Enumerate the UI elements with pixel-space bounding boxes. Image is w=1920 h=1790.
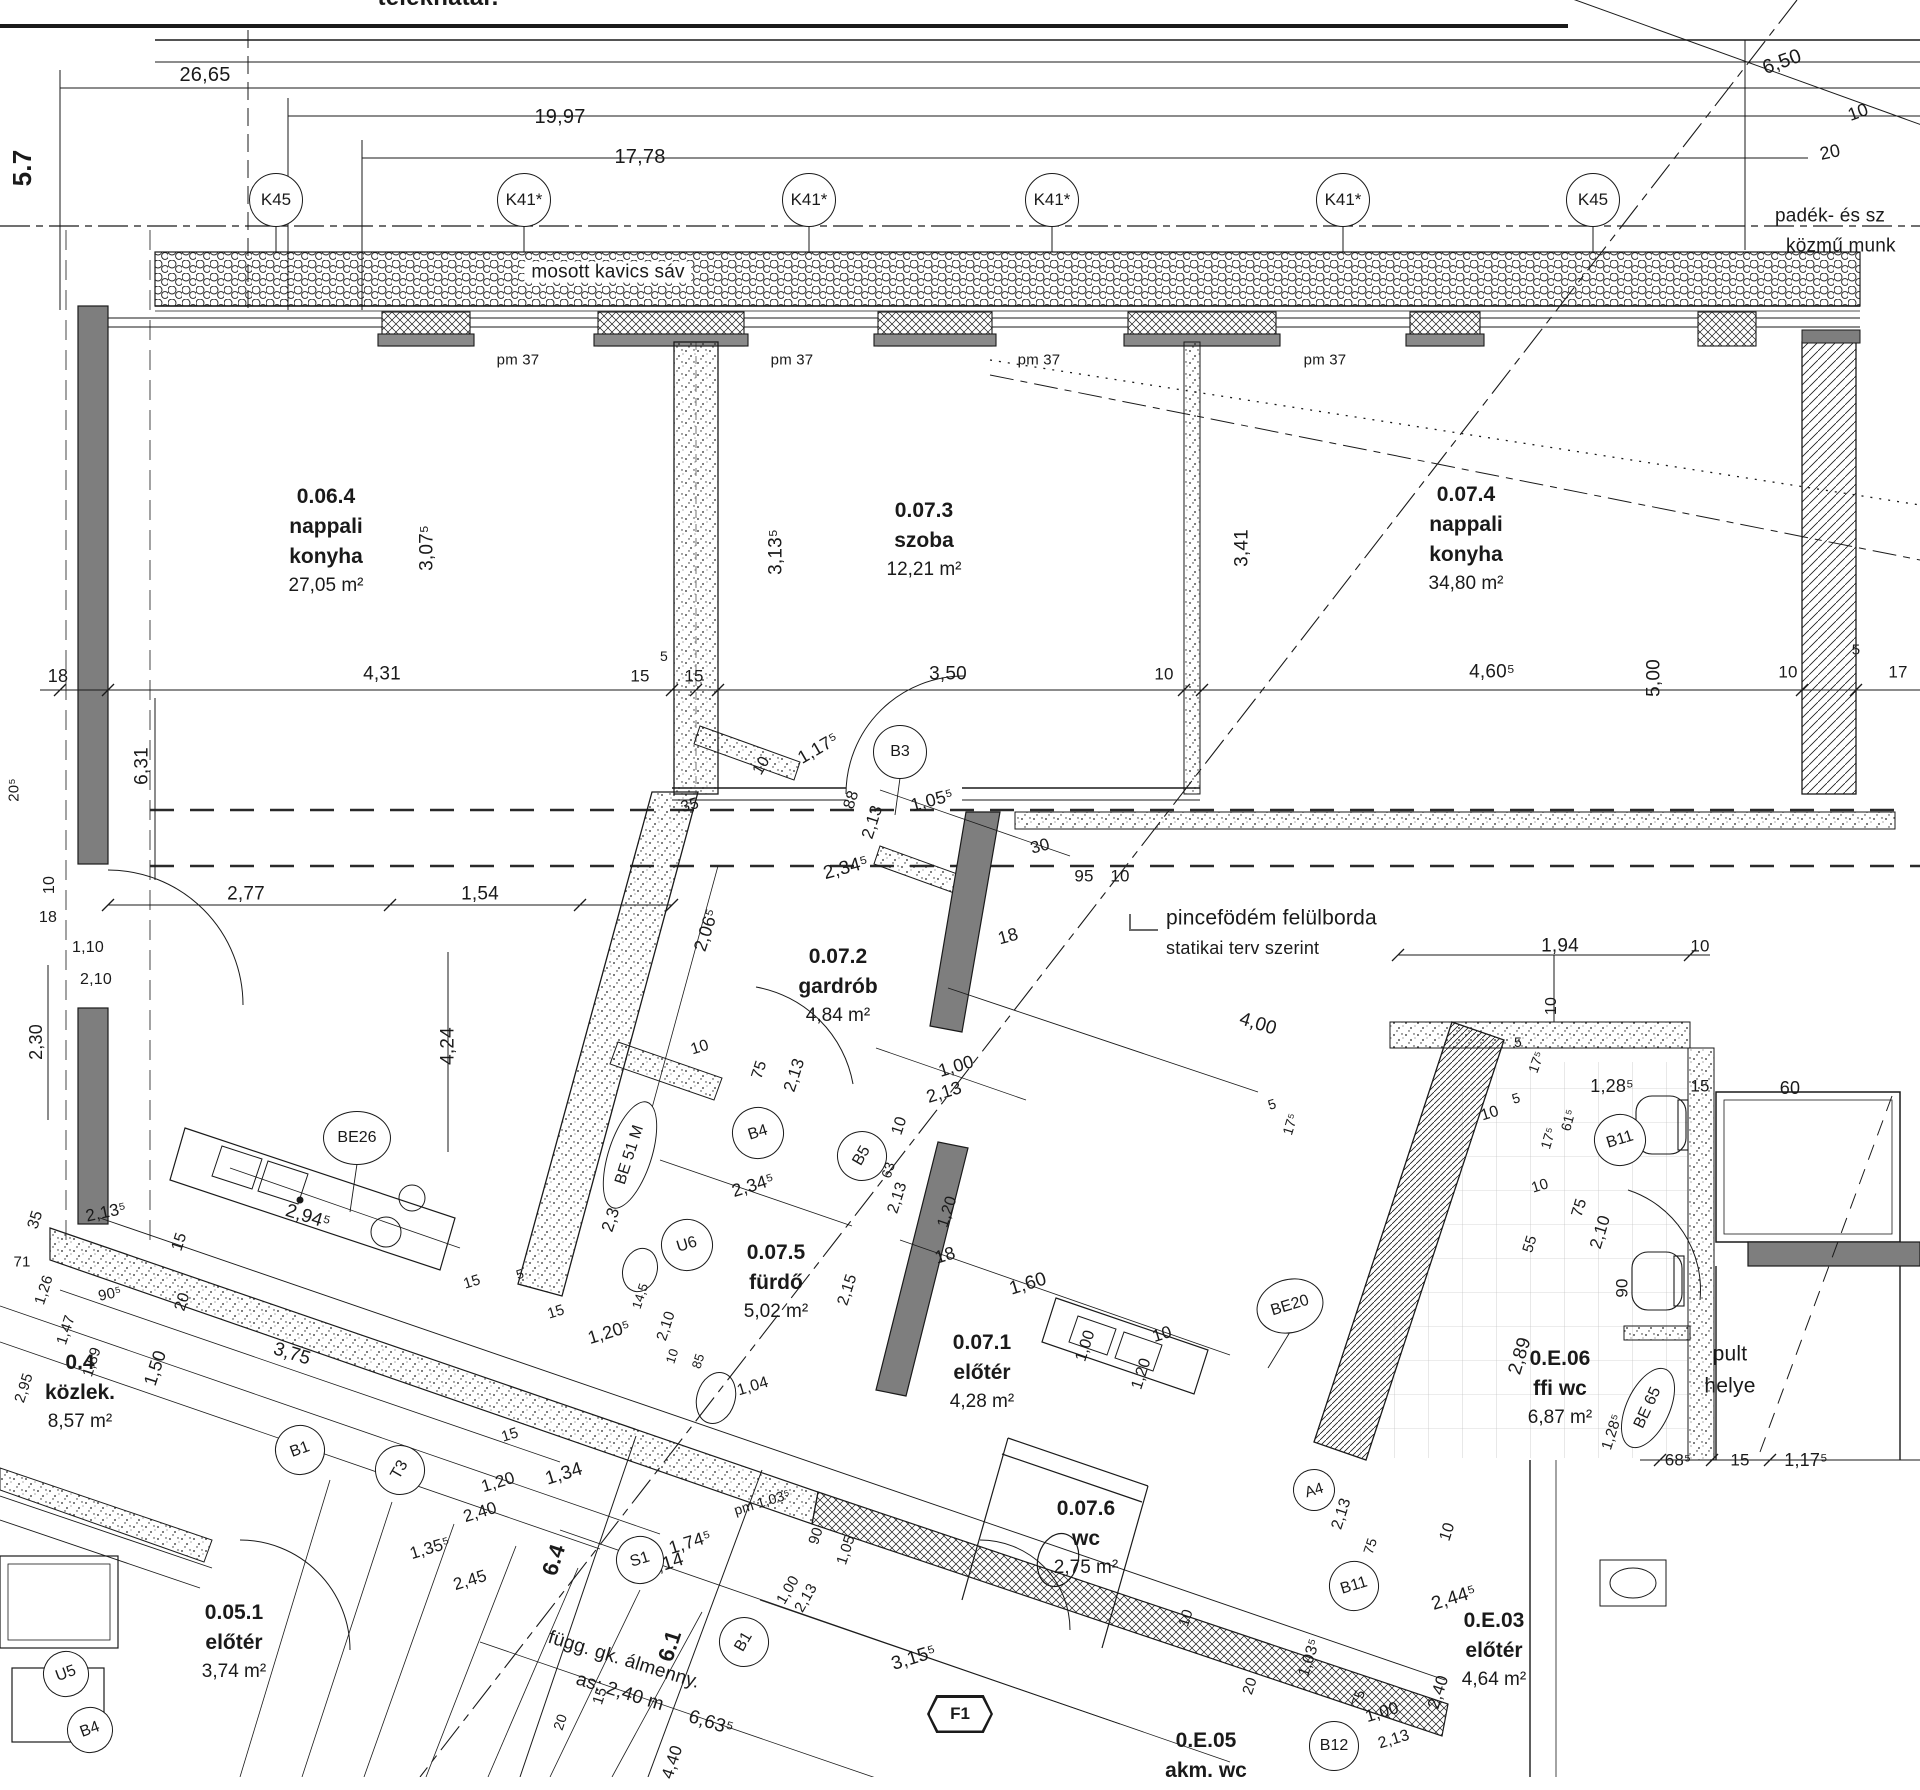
plan-linework bbox=[0, 0, 1920, 1777]
floor-plan: telekhatár.26,6519,9717,785.76,501020pad… bbox=[0, 0, 1920, 1777]
